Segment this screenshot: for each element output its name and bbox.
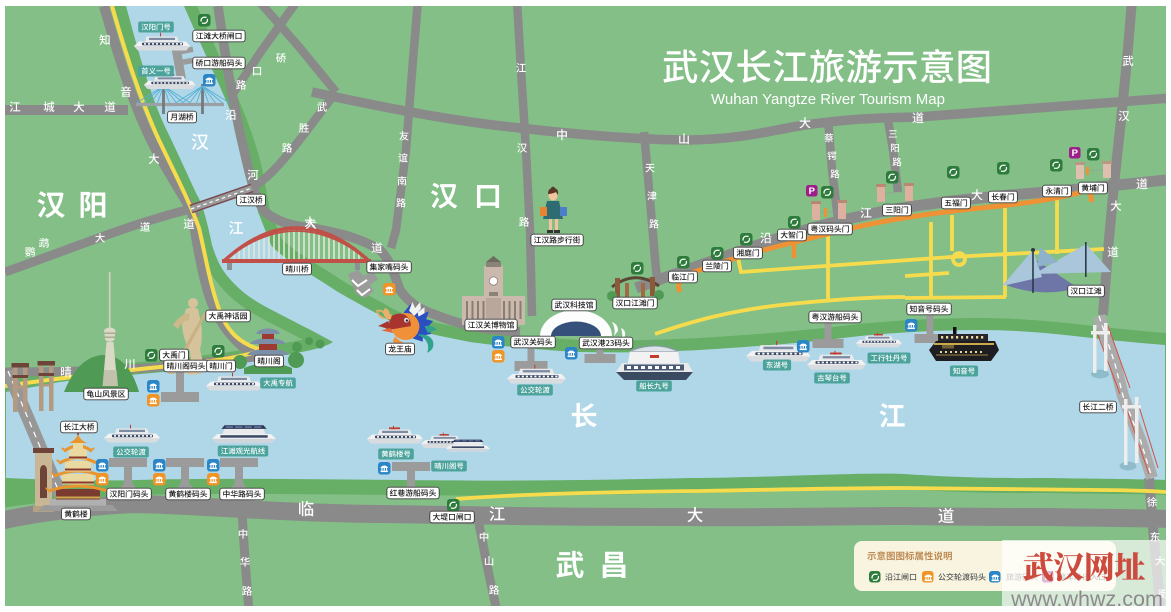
svg-text:Wuhan Yangtze River Tourism Ma: Wuhan Yangtze River Tourism Map — [711, 91, 945, 108]
svg-text:P: P — [1072, 148, 1079, 159]
svg-text:P: P — [809, 186, 816, 197]
